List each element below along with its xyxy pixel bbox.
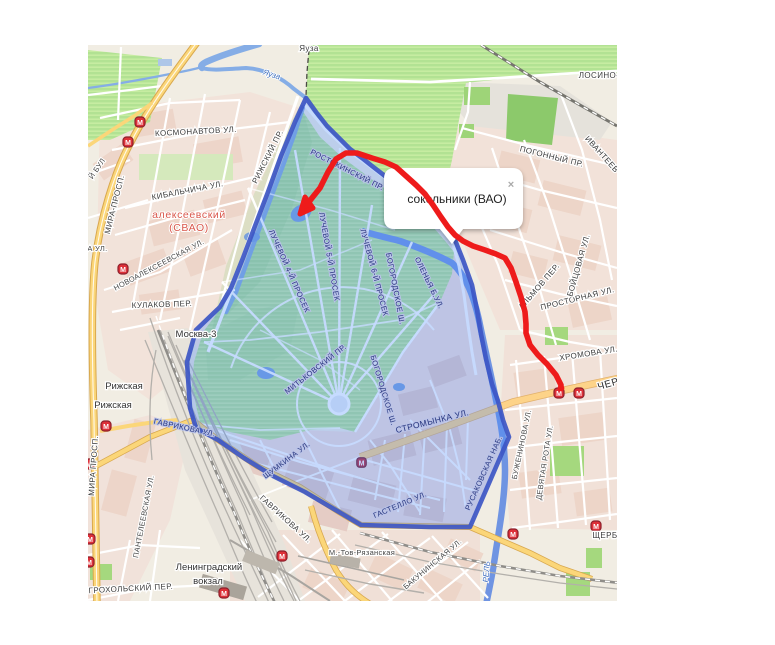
svg-text:ЛОСИНО-: ЛОСИНО- xyxy=(579,71,619,80)
svg-text:M: M xyxy=(510,532,516,539)
svg-text:M: M xyxy=(120,267,126,274)
svg-text:ЩЕРБ: ЩЕРБ xyxy=(592,531,617,540)
svg-text:M: M xyxy=(125,140,131,147)
svg-text:ЗА УЛ.: ЗА УЛ. xyxy=(83,244,108,253)
svg-text:M: M xyxy=(86,560,92,567)
svg-text:M: M xyxy=(221,591,227,598)
svg-text:алексеевский: алексеевский xyxy=(152,209,226,221)
svg-text:Рижская: Рижская xyxy=(105,381,143,392)
svg-text:M: M xyxy=(593,524,599,531)
svg-text:×: × xyxy=(508,179,514,191)
svg-text:M: M xyxy=(87,537,93,544)
svg-text:М.-Тов-Рязанская: М.-Тов-Рязанская xyxy=(329,548,395,557)
svg-text:M: M xyxy=(556,391,562,398)
svg-text:Москва-3: Москва-3 xyxy=(176,329,217,340)
svg-text:Рижская: Рижская xyxy=(94,400,132,411)
svg-text:РЕЛЬ: РЕЛЬ xyxy=(481,561,492,583)
svg-text:вокзал: вокзал xyxy=(193,576,223,587)
svg-text:M: M xyxy=(279,554,285,561)
svg-text:M: M xyxy=(576,391,582,398)
svg-text:M: M xyxy=(137,120,143,127)
svg-text:Ленинградский: Ленинградский xyxy=(176,562,242,573)
svg-text:(СВАО): (СВАО) xyxy=(169,222,209,234)
svg-text:Яуза: Яуза xyxy=(299,44,319,53)
svg-text:M: M xyxy=(103,424,109,431)
